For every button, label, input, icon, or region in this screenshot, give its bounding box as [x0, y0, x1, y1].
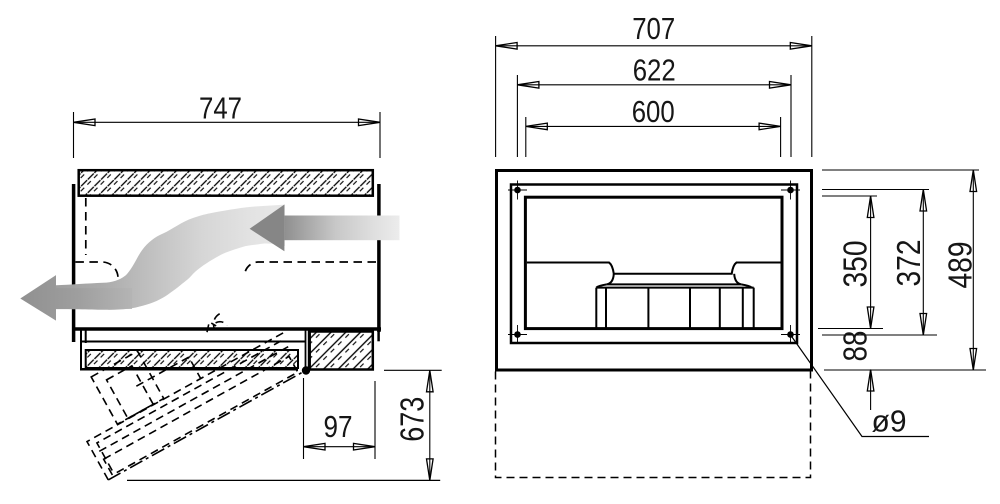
- svg-text:673: 673: [394, 397, 431, 442]
- svg-text:622: 622: [633, 54, 676, 88]
- svg-text:489: 489: [942, 242, 979, 289]
- svg-text:97: 97: [324, 410, 353, 444]
- svg-text:ø9: ø9: [872, 405, 907, 439]
- svg-text:707: 707: [632, 12, 675, 46]
- svg-text:88: 88: [837, 331, 874, 362]
- svg-text:747: 747: [199, 92, 242, 126]
- svg-text:372: 372: [890, 240, 927, 287]
- svg-text:350: 350: [837, 241, 874, 288]
- svg-text:600: 600: [632, 95, 675, 129]
